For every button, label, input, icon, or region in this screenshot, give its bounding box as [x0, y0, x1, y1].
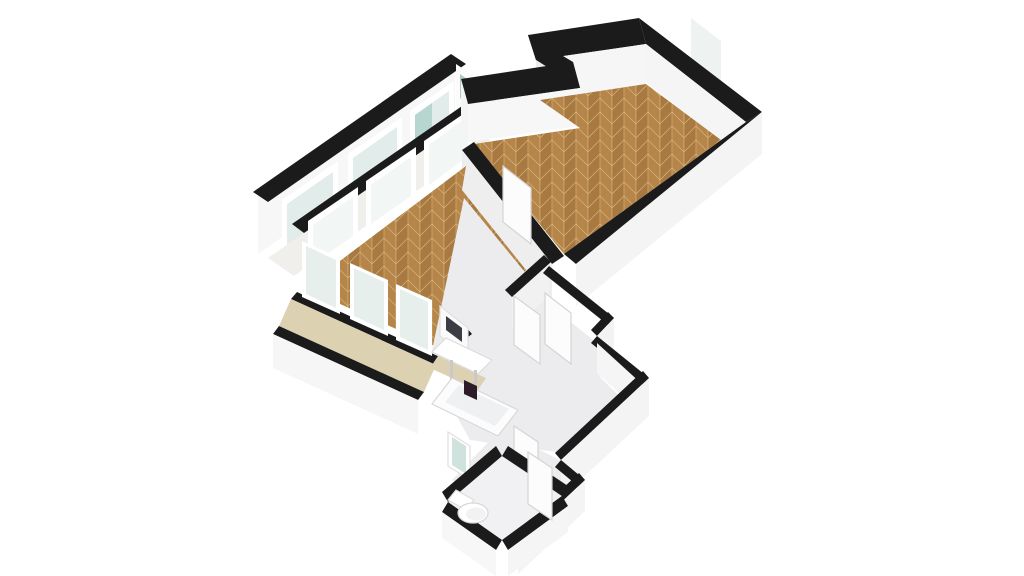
toilet-seat	[466, 508, 486, 521]
bath-sink-leg-1	[450, 360, 453, 380]
floor-plan-page	[0, 0, 1024, 576]
floor-plan-canvas	[0, 0, 1024, 576]
